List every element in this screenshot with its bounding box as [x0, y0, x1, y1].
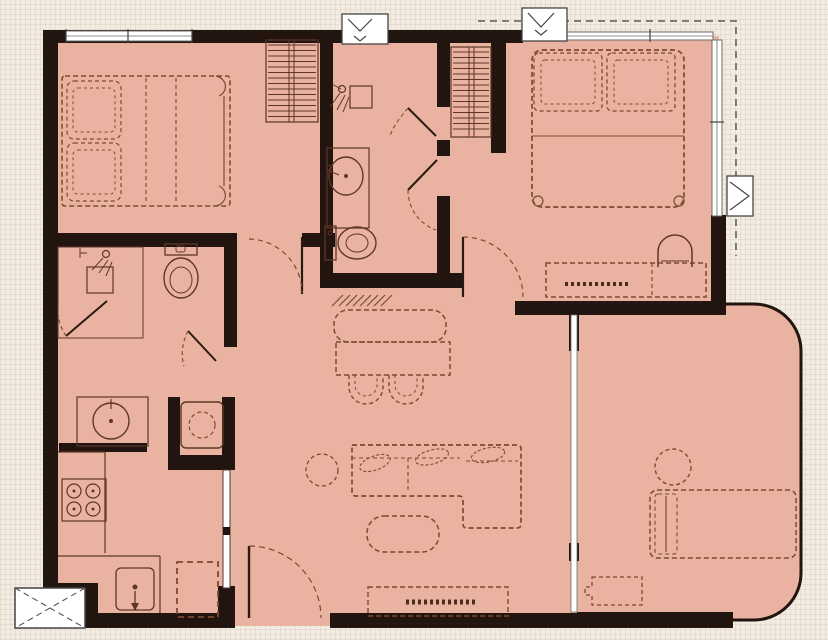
- floorplan-svg: [0, 0, 828, 640]
- ac-unit-right: [727, 176, 753, 216]
- window-master-right: [710, 40, 724, 216]
- floor: [51, 36, 801, 626]
- kitchen-living-partition: [223, 470, 230, 588]
- service-shaft: [15, 588, 85, 628]
- window-bedroom2: [66, 29, 192, 43]
- apartment-floor: [51, 36, 801, 626]
- balcony-glass-door: [571, 315, 577, 612]
- ac-unit-top-right: [522, 8, 567, 41]
- ac-unit-top-left: [342, 14, 388, 44]
- floorplan-canvas: [0, 0, 828, 640]
